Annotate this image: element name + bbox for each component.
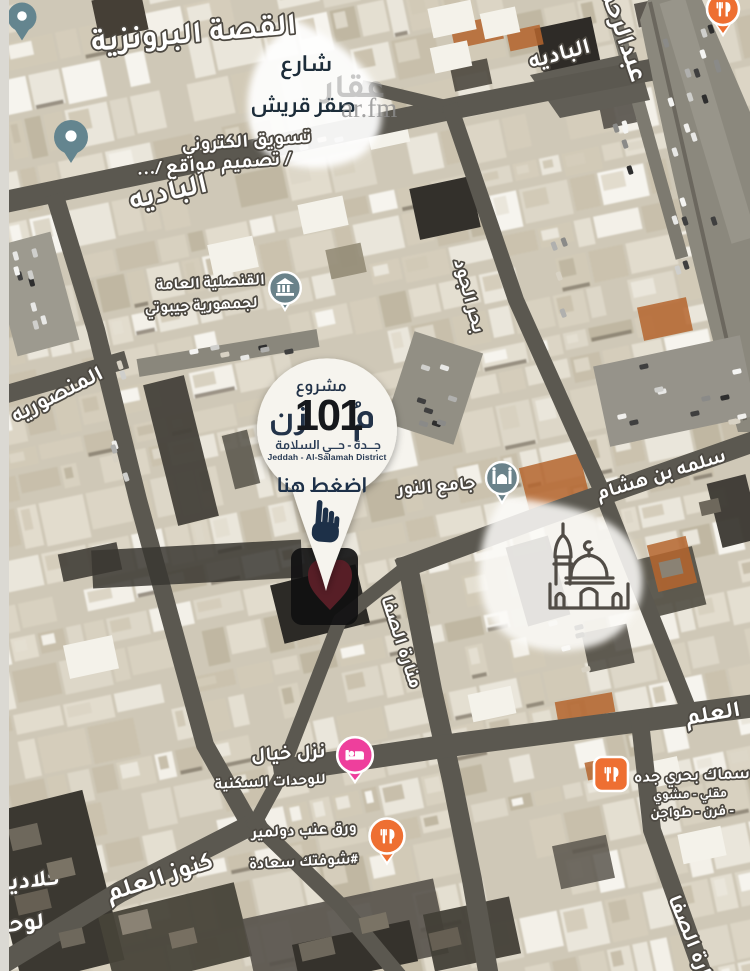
svg-text:ar.fm: ar.fm xyxy=(341,93,397,123)
svg-text:101: 101 xyxy=(295,392,362,440)
svg-text:Jeddah - Al-Salamah District: Jeddah - Al-Salamah District xyxy=(267,452,386,462)
